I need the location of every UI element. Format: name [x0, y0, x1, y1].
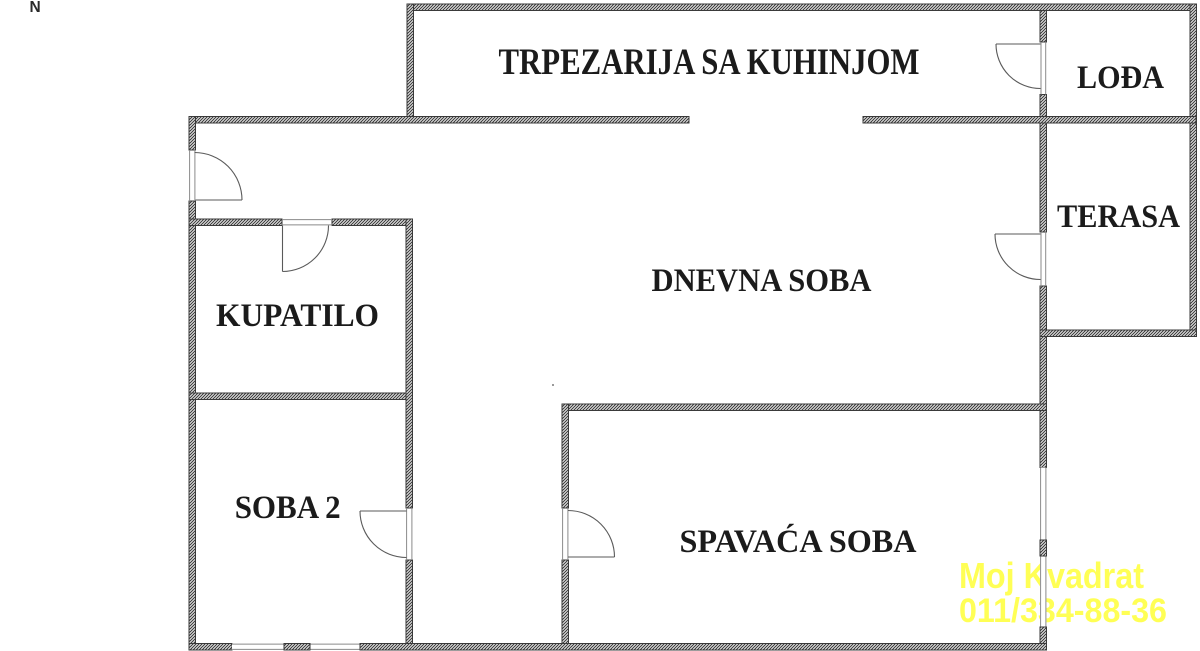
svg-text:TRPEZARIJA SA KUHINJOM: TRPEZARIJA SA KUHINJOM: [499, 42, 920, 83]
svg-text:DNEVNA SOBA: DNEVNA SOBA: [652, 263, 872, 299]
svg-text:LOĐA: LOĐA: [1077, 60, 1164, 96]
svg-text:N: N: [30, 0, 41, 16]
svg-text:011/334-88-36: 011/334-88-36: [959, 592, 1167, 630]
svg-text:SPAVAĆA SOBA: SPAVAĆA SOBA: [680, 522, 917, 560]
svg-text:Moj Kvadrat: Moj Kvadrat: [959, 555, 1144, 596]
svg-text:SOBA 2: SOBA 2: [235, 490, 341, 526]
svg-text:KUPATILO: KUPATILO: [216, 298, 379, 334]
svg-text:TERASA: TERASA: [1057, 199, 1180, 235]
